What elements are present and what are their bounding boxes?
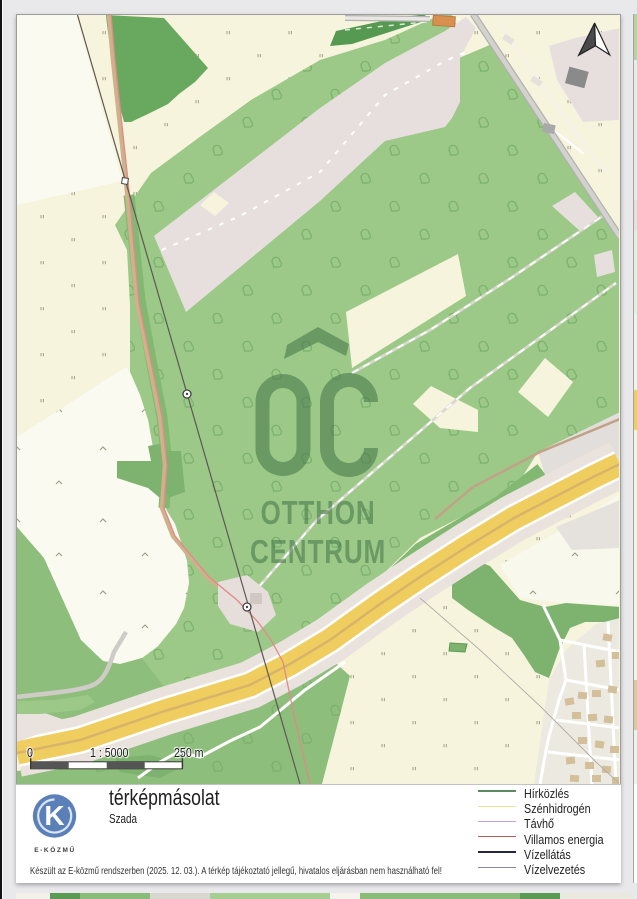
svg-text:K: K	[44, 800, 64, 831]
svg-text:E-KÖZMŰ: E-KÖZMŰ	[34, 845, 76, 854]
svg-text:OTTHON: OTTHON	[261, 495, 376, 532]
svg-text:CENTRUM: CENTRUM	[250, 534, 386, 571]
